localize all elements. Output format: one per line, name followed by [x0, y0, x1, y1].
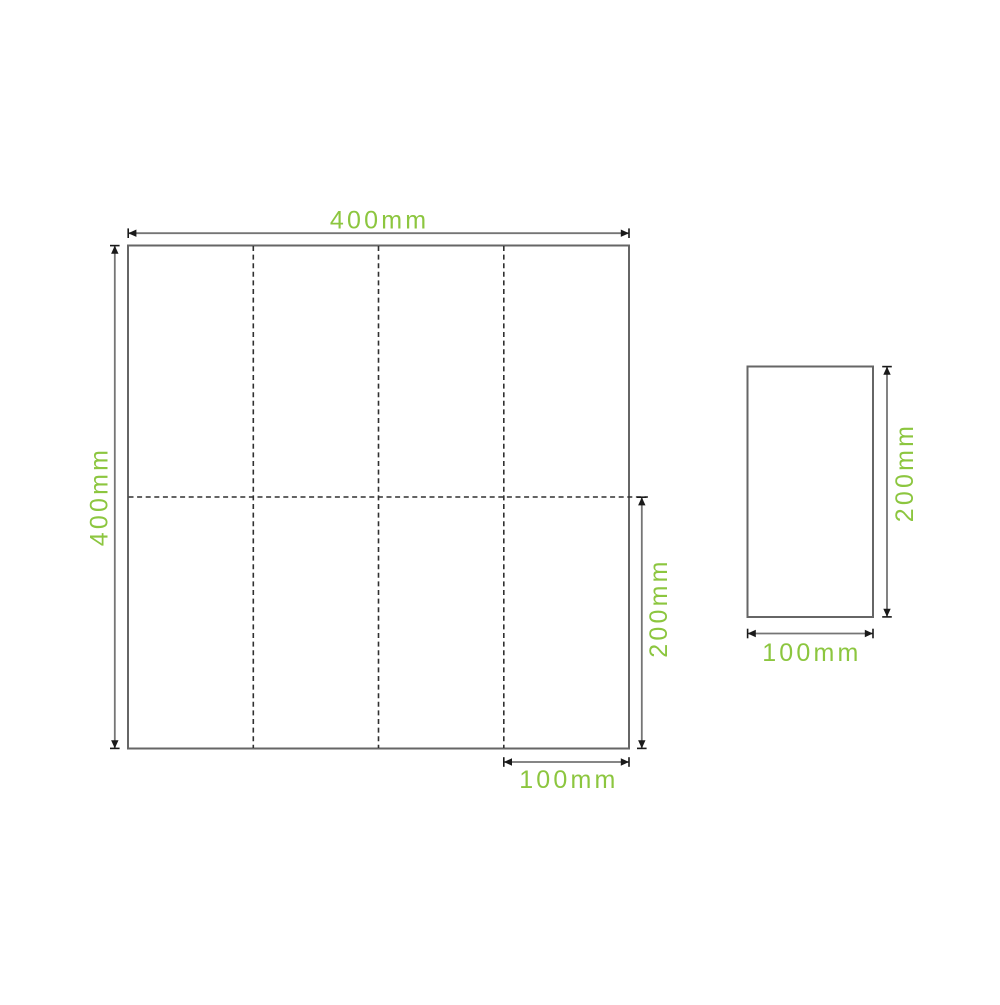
svg-text:400mm: 400mm	[330, 207, 429, 235]
svg-text:100mm: 100mm	[519, 766, 618, 794]
svg-text:200mm: 200mm	[891, 423, 919, 522]
svg-text:400mm: 400mm	[86, 447, 114, 546]
svg-text:200mm: 200mm	[645, 558, 673, 657]
svg-text:100mm: 100mm	[762, 639, 861, 667]
